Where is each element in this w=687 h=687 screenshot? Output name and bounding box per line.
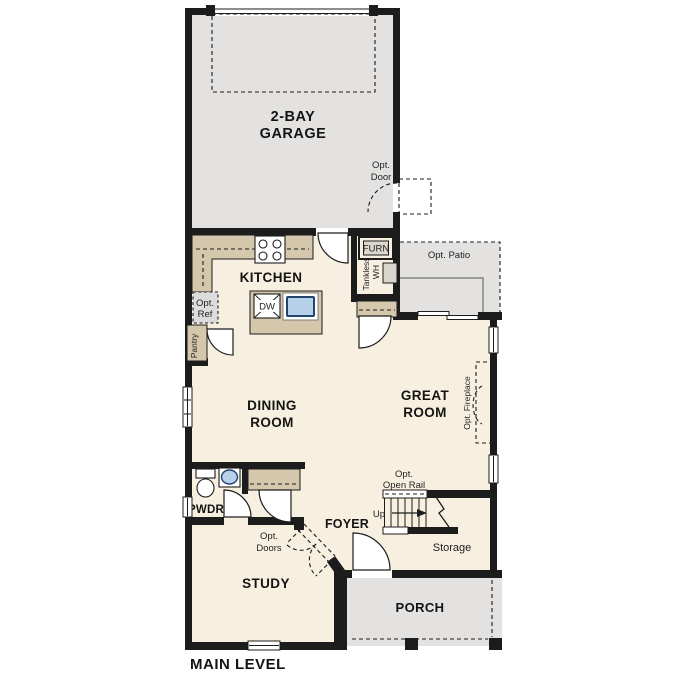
furnace-label: FURN [363, 244, 390, 255]
stairs-up-label: Up [373, 509, 385, 520]
garage-label-line2: GARAGE [260, 126, 327, 142]
water-heater-label-line2: WH [371, 265, 381, 279]
opt-rail-label-line2: Open Rail [383, 480, 425, 491]
garage-door [212, 7, 372, 16]
study-label: STUDY [242, 576, 290, 591]
porch-post [489, 638, 502, 650]
foyer-label: FOYER [325, 517, 369, 531]
powder-label: PWDR [188, 504, 224, 516]
opt-patio-label: Opt. Patio [428, 250, 470, 261]
dishwasher-label: DW [259, 302, 275, 313]
mechanical-closet: FURN Tankless WH [357, 237, 397, 317]
dining-label-line2: ROOM [250, 415, 294, 430]
storage-label: Storage [433, 542, 472, 554]
study-window [248, 641, 280, 650]
opt-door-label-line2: Door [371, 172, 392, 183]
floor-plan-page: 2-BAY GARAGE Opt. Door DW KITCHEN [0, 0, 687, 687]
pantry-label: Pantry [189, 333, 199, 358]
water-heater-label-line1: Tankless [361, 257, 371, 290]
great-room-window-upper [489, 327, 498, 353]
great-room-label-line1: GREAT [401, 388, 450, 403]
opt-door-label-line1: Opt. [372, 160, 390, 171]
dining-label-line1: DINING [247, 398, 297, 413]
opt-ref-label-line2: Ref [198, 309, 213, 320]
dishwasher-icon: DW [254, 294, 280, 318]
plan-title: MAIN LEVEL [190, 656, 286, 673]
porch-post [405, 638, 418, 650]
powder-window [183, 497, 192, 517]
great-room-label-line2: ROOM [403, 405, 447, 420]
powder-sink-icon [219, 468, 240, 487]
island-sink-icon [283, 293, 318, 320]
opt-rail-label-line1: Opt. [395, 469, 413, 480]
dining-window [183, 387, 192, 427]
floor-plan-drawing: 2-BAY GARAGE Opt. Door DW KITCHEN [0, 0, 687, 687]
opt-ref-label-line1: Opt. [196, 298, 214, 309]
garage-label-line1: 2-BAY [271, 109, 316, 125]
opt-doors-label-line2: Doors [256, 543, 282, 554]
porch-label: PORCH [396, 600, 445, 615]
water-heater-icon [383, 263, 397, 283]
toilet-icon [196, 469, 215, 497]
opt-fireplace-label: Opt. Fireplace [462, 376, 472, 430]
kitchen-label: KITCHEN [240, 270, 303, 285]
opt-door-stoop [399, 179, 431, 214]
coat-closet-shelf [357, 301, 397, 317]
stove-icon [255, 236, 285, 263]
great-room-window-lower [489, 455, 498, 483]
opt-doors-label-line1: Opt. [260, 531, 278, 542]
hall-closet-shelf [248, 469, 300, 490]
